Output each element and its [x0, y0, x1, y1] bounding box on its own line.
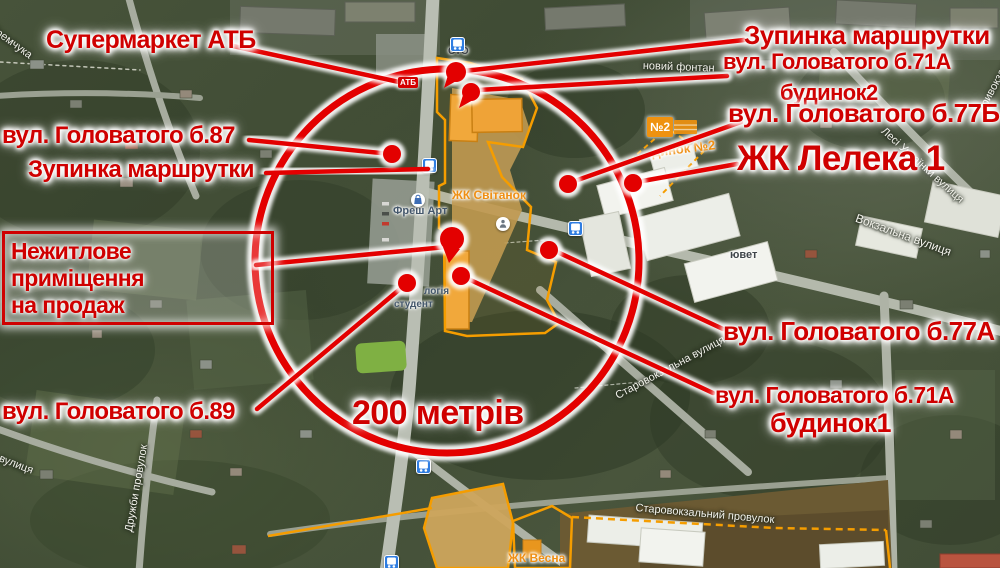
n2-building-sign: №2: [647, 117, 673, 137]
g71a-b1-house-label: будинок1: [770, 410, 891, 438]
stop-right-label: Зупинка маршрутки: [744, 22, 990, 49]
n2-sign-side-text: [674, 120, 697, 134]
for-sale-line2: на продаж: [11, 292, 265, 319]
annotated-map: Юрія Яремчукановий фонтанСТОПривокзальна…: [0, 0, 1000, 568]
g71a-b1-street-label: вул. Головатого б.71А: [715, 384, 954, 407]
radius-200m-label: 200 метрів: [352, 396, 524, 431]
golovatogo-77a-label: вул. Головатого б.77А: [723, 318, 995, 345]
supermarket-atb-label: Супермаркет АТБ: [46, 28, 256, 54]
golovatogo-87-label: вул. Головатого б.87: [2, 124, 235, 148]
stop-left-label: Зупинка маршрутки: [28, 158, 254, 182]
zhk-leleka-1-label: ЖК Лелека 1: [737, 141, 945, 177]
golovatogo-77b-label: вул. Головатого б.77Б: [728, 100, 999, 127]
golovatogo-89-label: вул. Головатого б.89: [2, 400, 235, 424]
for-sale-line1: Нежитлове приміщення: [11, 238, 265, 292]
for-sale-info-box: Нежитлове приміщення на продаж: [2, 231, 274, 325]
atb-shop-sign: АТБ: [398, 77, 418, 88]
g71a-b2-street-label: вул. Головатого б.71А: [723, 51, 951, 73]
